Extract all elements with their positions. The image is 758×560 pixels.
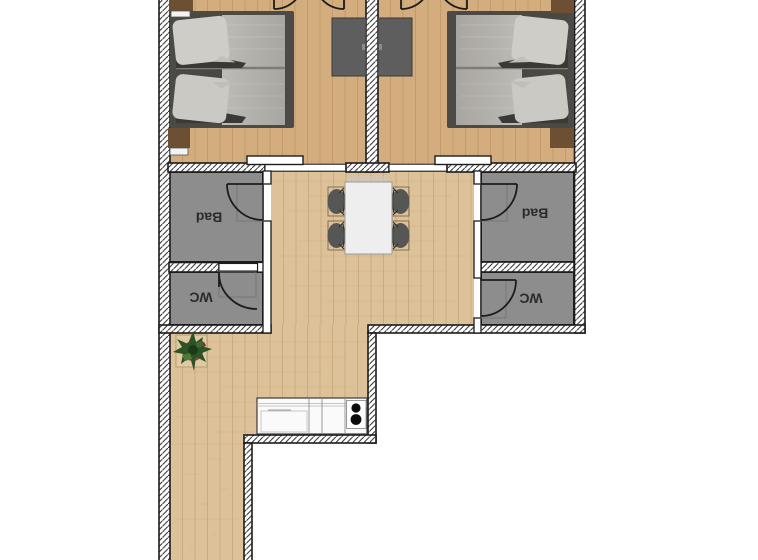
svg-text:Bad: Bad (196, 209, 222, 225)
svg-text:WC: WC (189, 289, 212, 305)
svg-text:WC: WC (519, 290, 542, 306)
svg-text:Bad: Bad (522, 205, 548, 221)
